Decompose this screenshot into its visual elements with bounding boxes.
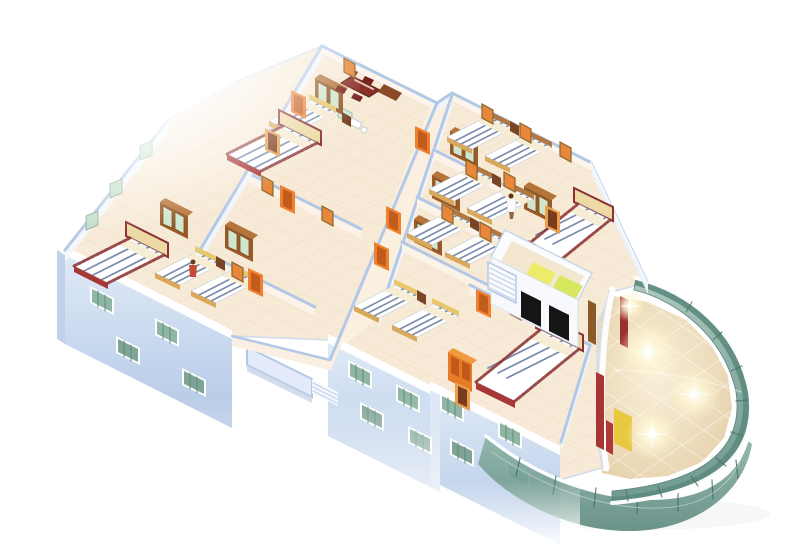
floorplan-canvas (0, 0, 800, 550)
floorplan-3d-render (0, 0, 800, 550)
reception-wood-panel (588, 300, 596, 345)
person-head (509, 194, 514, 199)
reception-red-counter (606, 420, 613, 455)
fade-bottom-master (365, 480, 580, 550)
reception-red-bar (596, 372, 604, 450)
person-body (507, 199, 516, 212)
fade-left-strip (0, 60, 60, 440)
bath-toilet (361, 127, 367, 133)
person-head (191, 260, 196, 265)
person-body-red (189, 265, 197, 277)
